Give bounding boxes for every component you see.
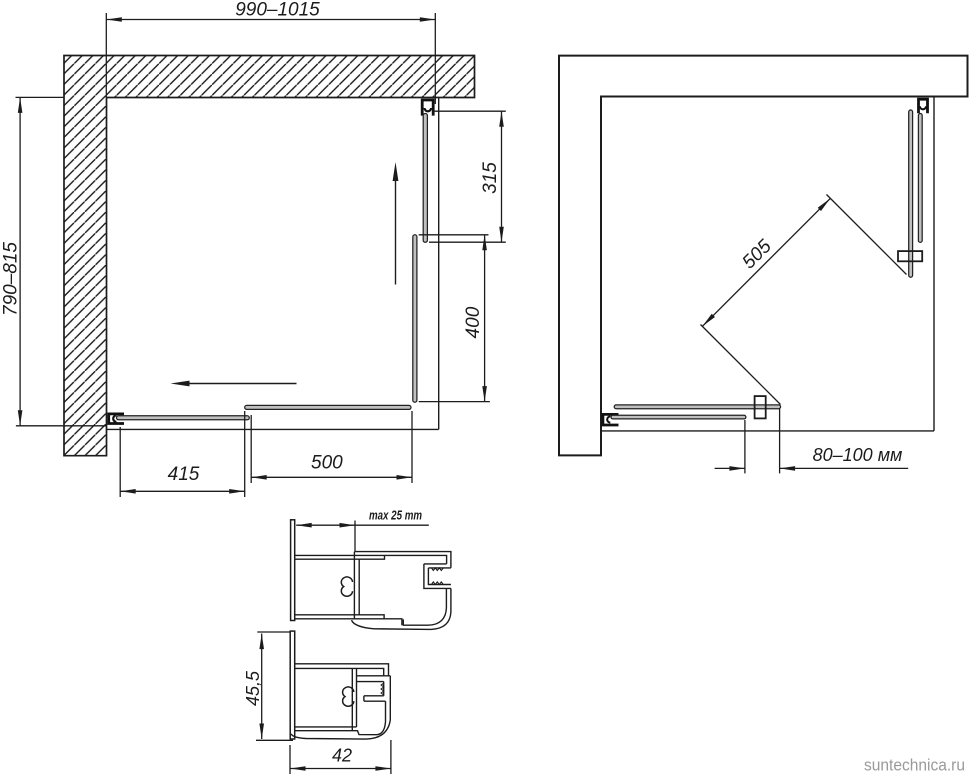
svg-text:80–100 мм: 80–100 мм xyxy=(813,445,903,465)
svg-text:415: 415 xyxy=(168,464,200,485)
svg-text:max 25 mm: max 25 mm xyxy=(369,509,422,523)
svg-text:400: 400 xyxy=(463,306,484,338)
svg-text:990–1015: 990–1015 xyxy=(235,0,320,21)
svg-text:45,5: 45,5 xyxy=(243,670,263,706)
svg-text:500: 500 xyxy=(311,453,343,474)
svg-text:315: 315 xyxy=(480,162,501,194)
svg-text:790–815: 790–815 xyxy=(1,242,22,316)
svg-text:505: 505 xyxy=(738,236,776,274)
svg-text:suntechnica.ru: suntechnica.ru xyxy=(864,757,965,775)
svg-text:42: 42 xyxy=(332,746,352,766)
